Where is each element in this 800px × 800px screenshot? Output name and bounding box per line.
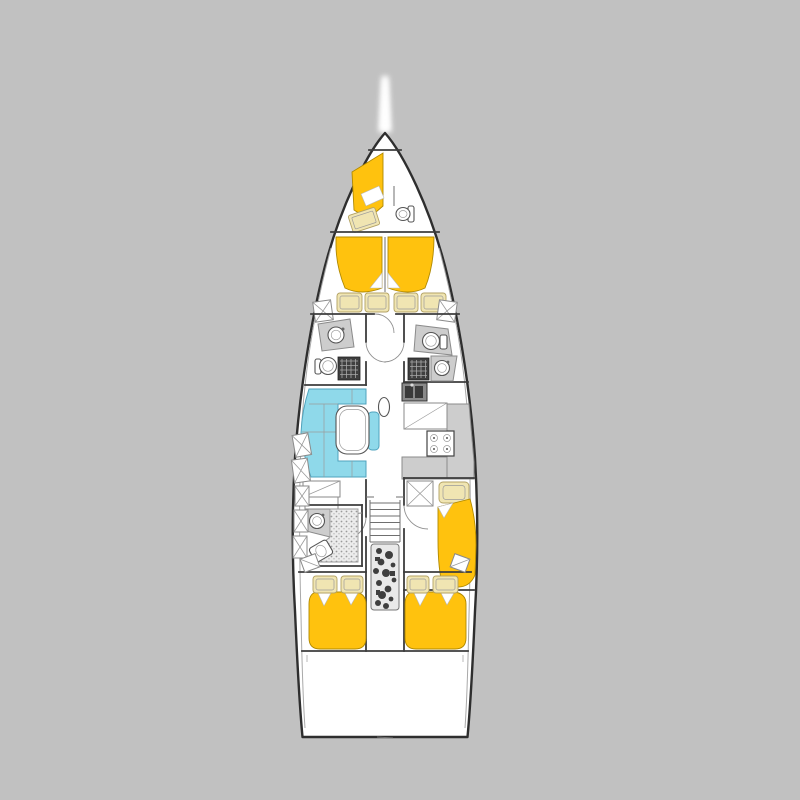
port-locker	[293, 486, 309, 558]
single-cabin-seat	[439, 482, 469, 503]
galley-counter-aft	[402, 457, 447, 479]
mast	[379, 398, 390, 417]
crew-head-toilet	[396, 206, 414, 222]
port-head-toilet	[320, 358, 337, 375]
port-locker	[292, 433, 312, 457]
galley-stove	[427, 431, 454, 456]
yacht-floor-plan	[0, 0, 800, 800]
port-locker	[313, 300, 334, 322]
yacht-plan-canvas	[0, 0, 800, 800]
port-head-shower-grate	[338, 357, 360, 380]
port-locker	[291, 458, 310, 483]
salon-table	[336, 406, 369, 454]
starboard-locker	[437, 300, 458, 322]
bowsprit	[379, 76, 392, 132]
sofa-side-cushion	[368, 412, 379, 450]
engine-compartment	[371, 544, 399, 610]
starboard-aft-double-berth	[405, 576, 466, 649]
galley-sink	[402, 383, 427, 401]
starboard-head-toilet	[423, 333, 440, 350]
cabin-locker	[407, 481, 433, 506]
starboard-head-shower-grate	[408, 358, 429, 380]
